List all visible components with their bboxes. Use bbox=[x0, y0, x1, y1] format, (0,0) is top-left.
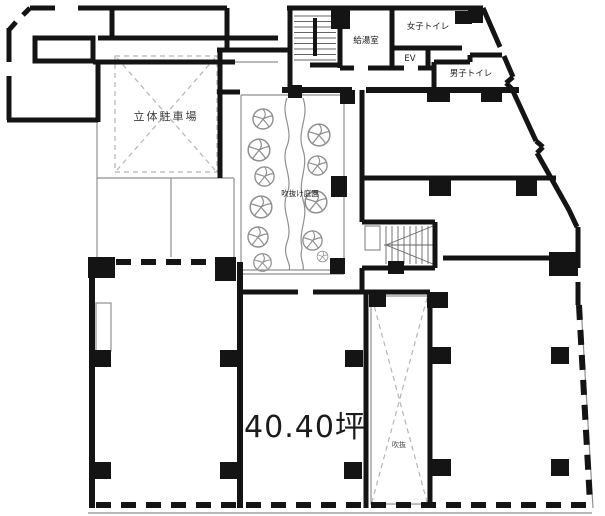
tree-icon bbox=[250, 196, 272, 218]
atrium-garden-label: 吹抜け庭園 bbox=[281, 188, 319, 198]
staircase-right bbox=[384, 226, 433, 264]
void-x-pattern bbox=[372, 298, 427, 502]
elevator-label: EV bbox=[404, 54, 415, 64]
room-labels: 立体駐車場 給湯室 女子トイレ EV 男子トイレ 吹抜け庭園 40.40坪 吹抜 bbox=[134, 21, 493, 449]
void-label: 吹抜 bbox=[392, 440, 406, 449]
tree-icon bbox=[248, 227, 268, 247]
womens-toilet-label: 女子トイレ bbox=[407, 21, 450, 32]
tree-icon bbox=[317, 251, 328, 262]
floor-plan-drawing: 立体駐車場 給湯室 女子トイレ EV 男子トイレ 吹抜け庭園 40.40坪 吹抜 bbox=[0, 0, 605, 516]
parking-label: 立体駐車場 bbox=[134, 109, 199, 123]
kitchenette-label: 給湯室 bbox=[353, 35, 379, 46]
atrium-garden bbox=[248, 98, 330, 271]
tree-icon bbox=[303, 231, 322, 250]
tree-icon bbox=[308, 124, 330, 146]
thin-partitions bbox=[88, 62, 593, 513]
dashed-walls bbox=[96, 262, 590, 505]
structural-columns bbox=[88, 8, 578, 479]
staircase-top bbox=[294, 16, 336, 60]
mens-toilet-label: 男子トイレ bbox=[450, 69, 493, 79]
tree-icon bbox=[254, 254, 272, 272]
tree-icon bbox=[308, 156, 327, 175]
tree-icon bbox=[253, 109, 273, 129]
tree-icon bbox=[255, 167, 274, 186]
area-label: 40.40坪 bbox=[244, 410, 366, 445]
tree-icon bbox=[248, 139, 270, 161]
floor-plan: 立体駐車場 給湯室 女子トイレ EV 男子トイレ 吹抜け庭園 40.40坪 吹抜 bbox=[0, 0, 605, 516]
